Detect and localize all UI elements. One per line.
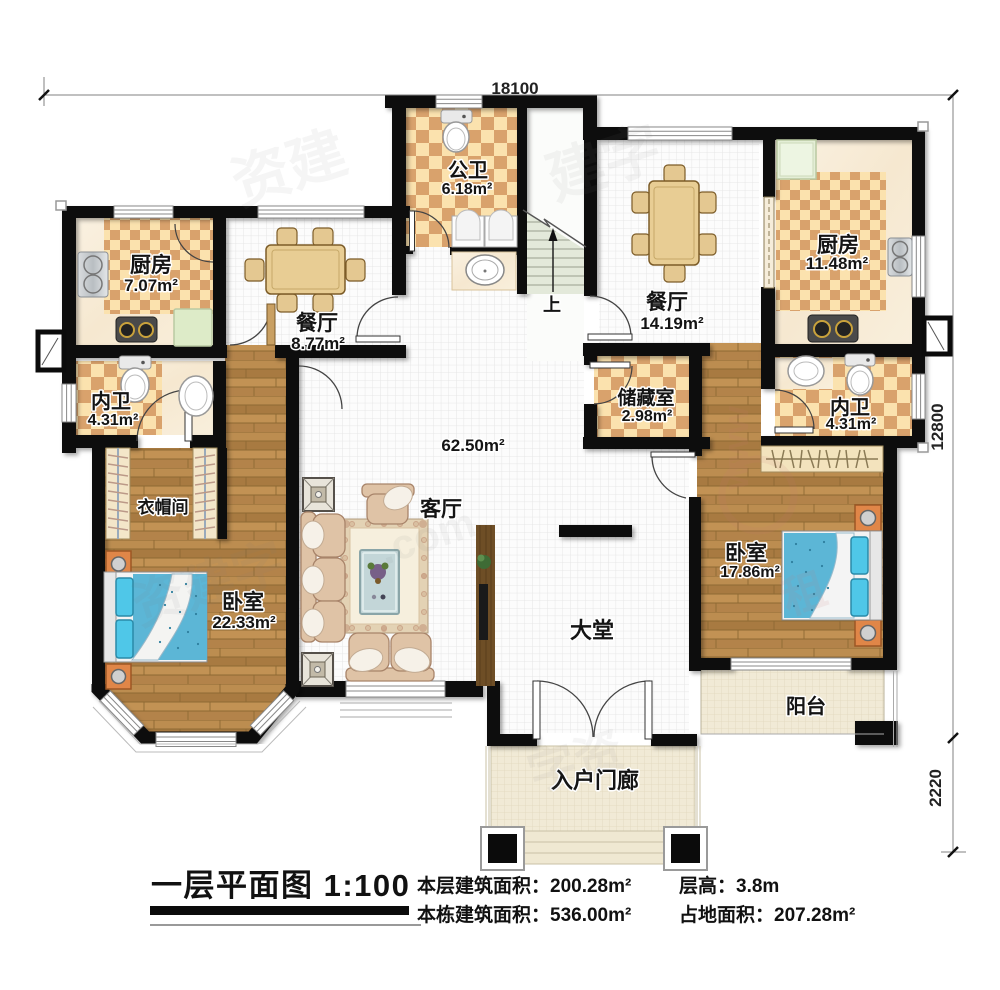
svg-text:www: www	[715, 405, 756, 491]
svg-text:餐厅: 餐厅	[646, 290, 688, 314]
svg-text:厨房: 厨房	[130, 253, 172, 277]
svg-text:层高：3.8m: 层高：3.8m	[679, 874, 779, 897]
svg-text:14.19m²: 14.19m²	[640, 314, 704, 333]
svg-text:4.31m²: 4.31m²	[88, 412, 139, 429]
svg-text:本层建筑面积：200.28m²: 本层建筑面积：200.28m²	[417, 874, 631, 897]
svg-text:本栋建筑面积：536.00m²: 本栋建筑面积：536.00m²	[417, 903, 631, 926]
svg-text:6.18m²: 6.18m²	[442, 181, 493, 198]
svg-text:2220: 2220	[926, 769, 945, 807]
svg-text:内卫: 内卫	[91, 389, 131, 413]
svg-text:17.86m²: 17.86m²	[720, 564, 780, 581]
svg-text:7.07m²: 7.07m²	[124, 276, 178, 295]
svg-text:一层平面图 1:100: 一层平面图 1:100	[151, 868, 410, 903]
svg-text:18100: 18100	[491, 79, 538, 98]
svg-text:62.50m²: 62.50m²	[441, 436, 505, 455]
svg-text:餐厅: 餐厅	[296, 311, 338, 335]
svg-text:储藏室: 储藏室	[617, 386, 674, 409]
svg-text:卧室: 卧室	[725, 541, 767, 565]
svg-text:8.77m²: 8.77m²	[291, 334, 345, 353]
svg-text:占地面积：207.28m²: 占地面积：207.28m²	[679, 903, 855, 926]
svg-text:公卫: 公卫	[448, 159, 488, 182]
svg-text:衣帽间: 衣帽间	[138, 497, 189, 517]
svg-text:4.31m²: 4.31m²	[826, 416, 877, 433]
svg-text:22.33m²: 22.33m²	[212, 613, 276, 632]
svg-text:12800: 12800	[928, 403, 947, 450]
svg-text:2.98m²: 2.98m²	[622, 408, 673, 425]
svg-text:大堂: 大堂	[570, 618, 614, 643]
svg-text:阳台: 阳台	[786, 694, 826, 718]
svg-text:上: 上	[543, 295, 561, 315]
svg-text:11.48m²: 11.48m²	[806, 254, 869, 273]
